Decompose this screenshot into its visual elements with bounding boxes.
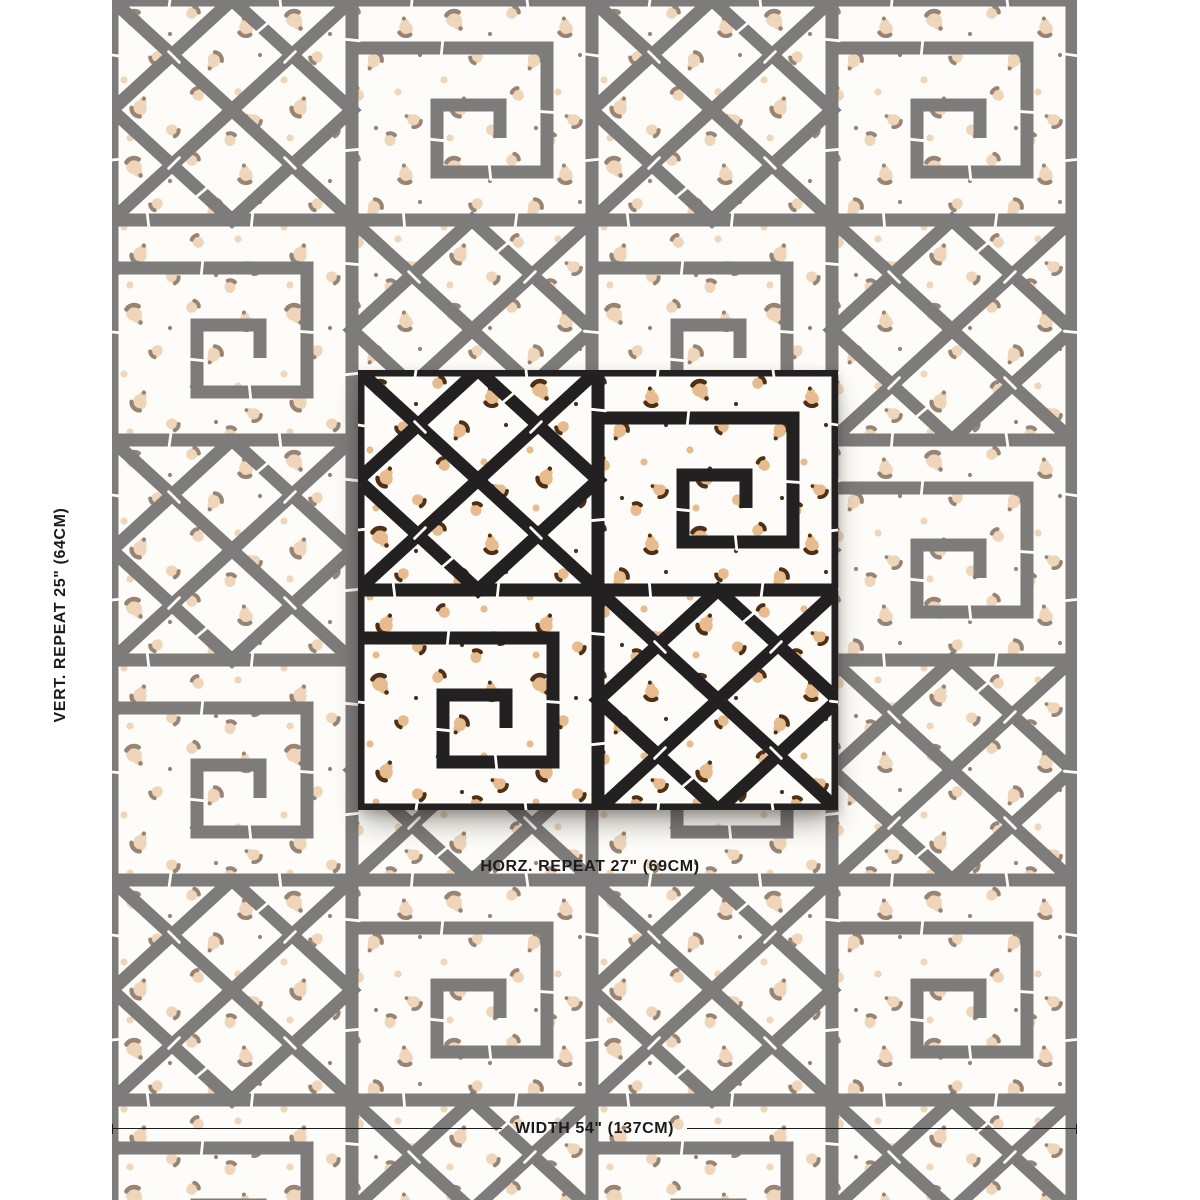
- fabric-product-image: VERT. REPEAT 25" (64CM) HORZ. REPEAT 27"…: [0, 0, 1200, 1200]
- repeat-preview-square: [358, 370, 838, 810]
- width-label: WIDTH 54" (137CM): [515, 1120, 674, 1138]
- measure-tick-right: [1076, 1124, 1077, 1134]
- vertical-repeat-label: VERT. REPEAT 25" (64CM): [52, 508, 70, 723]
- measure-line-right: [687, 1128, 1076, 1129]
- width-measure: WIDTH 54" (137CM): [112, 1120, 1077, 1137]
- measure-line-left: [113, 1128, 502, 1129]
- fabric-pattern-repeat: [358, 370, 838, 810]
- horizontal-repeat-label: HORZ. REPEAT 27" (69CM): [480, 858, 699, 876]
